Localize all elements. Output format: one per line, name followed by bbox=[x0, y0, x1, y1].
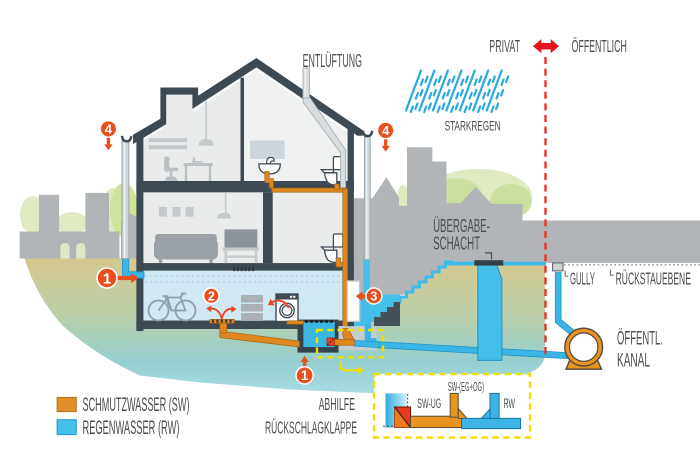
svg-text:4: 4 bbox=[105, 122, 113, 137]
svg-text:RW: RW bbox=[504, 397, 516, 412]
svg-text:RÜCKSCHLAGKLAPPE: RÜCKSCHLAGKLAPPE bbox=[265, 416, 357, 438]
svg-text:KANAL: KANAL bbox=[617, 350, 650, 371]
svg-text:SCHMUTZWASSER (SW): SCHMUTZWASSER (SW) bbox=[83, 396, 190, 416]
svg-text:SW-(EG+OG): SW-(EG+OG) bbox=[448, 381, 484, 395]
svg-text:SW-UG: SW-UG bbox=[417, 397, 441, 412]
svg-text:1: 1 bbox=[301, 368, 309, 383]
svg-text:RÜCKSTAUEBENE: RÜCKSTAUEBENE bbox=[616, 267, 691, 289]
svg-text:4: 4 bbox=[382, 123, 390, 138]
svg-text:ENTLÜFTUNG: ENTLÜFTUNG bbox=[303, 49, 362, 72]
svg-text:STARKREGEN: STARKREGEN bbox=[445, 120, 501, 134]
svg-text:SCHACHT: SCHACHT bbox=[433, 234, 480, 254]
svg-text:3: 3 bbox=[370, 290, 377, 304]
svg-text:1: 1 bbox=[103, 270, 111, 287]
svg-text:GULLY: GULLY bbox=[570, 268, 595, 289]
svg-text:REGENWASSER (RW): REGENWASSER (RW) bbox=[83, 417, 180, 439]
svg-text:ÖFFENTLICH: ÖFFENTLICH bbox=[572, 34, 627, 57]
svg-text:ABHILFE: ABHILFE bbox=[319, 393, 355, 413]
svg-text:PRIVAT: PRIVAT bbox=[489, 37, 520, 57]
svg-text:ÖFFENTL.: ÖFFENTL. bbox=[617, 327, 663, 350]
svg-text:2: 2 bbox=[208, 289, 215, 303]
